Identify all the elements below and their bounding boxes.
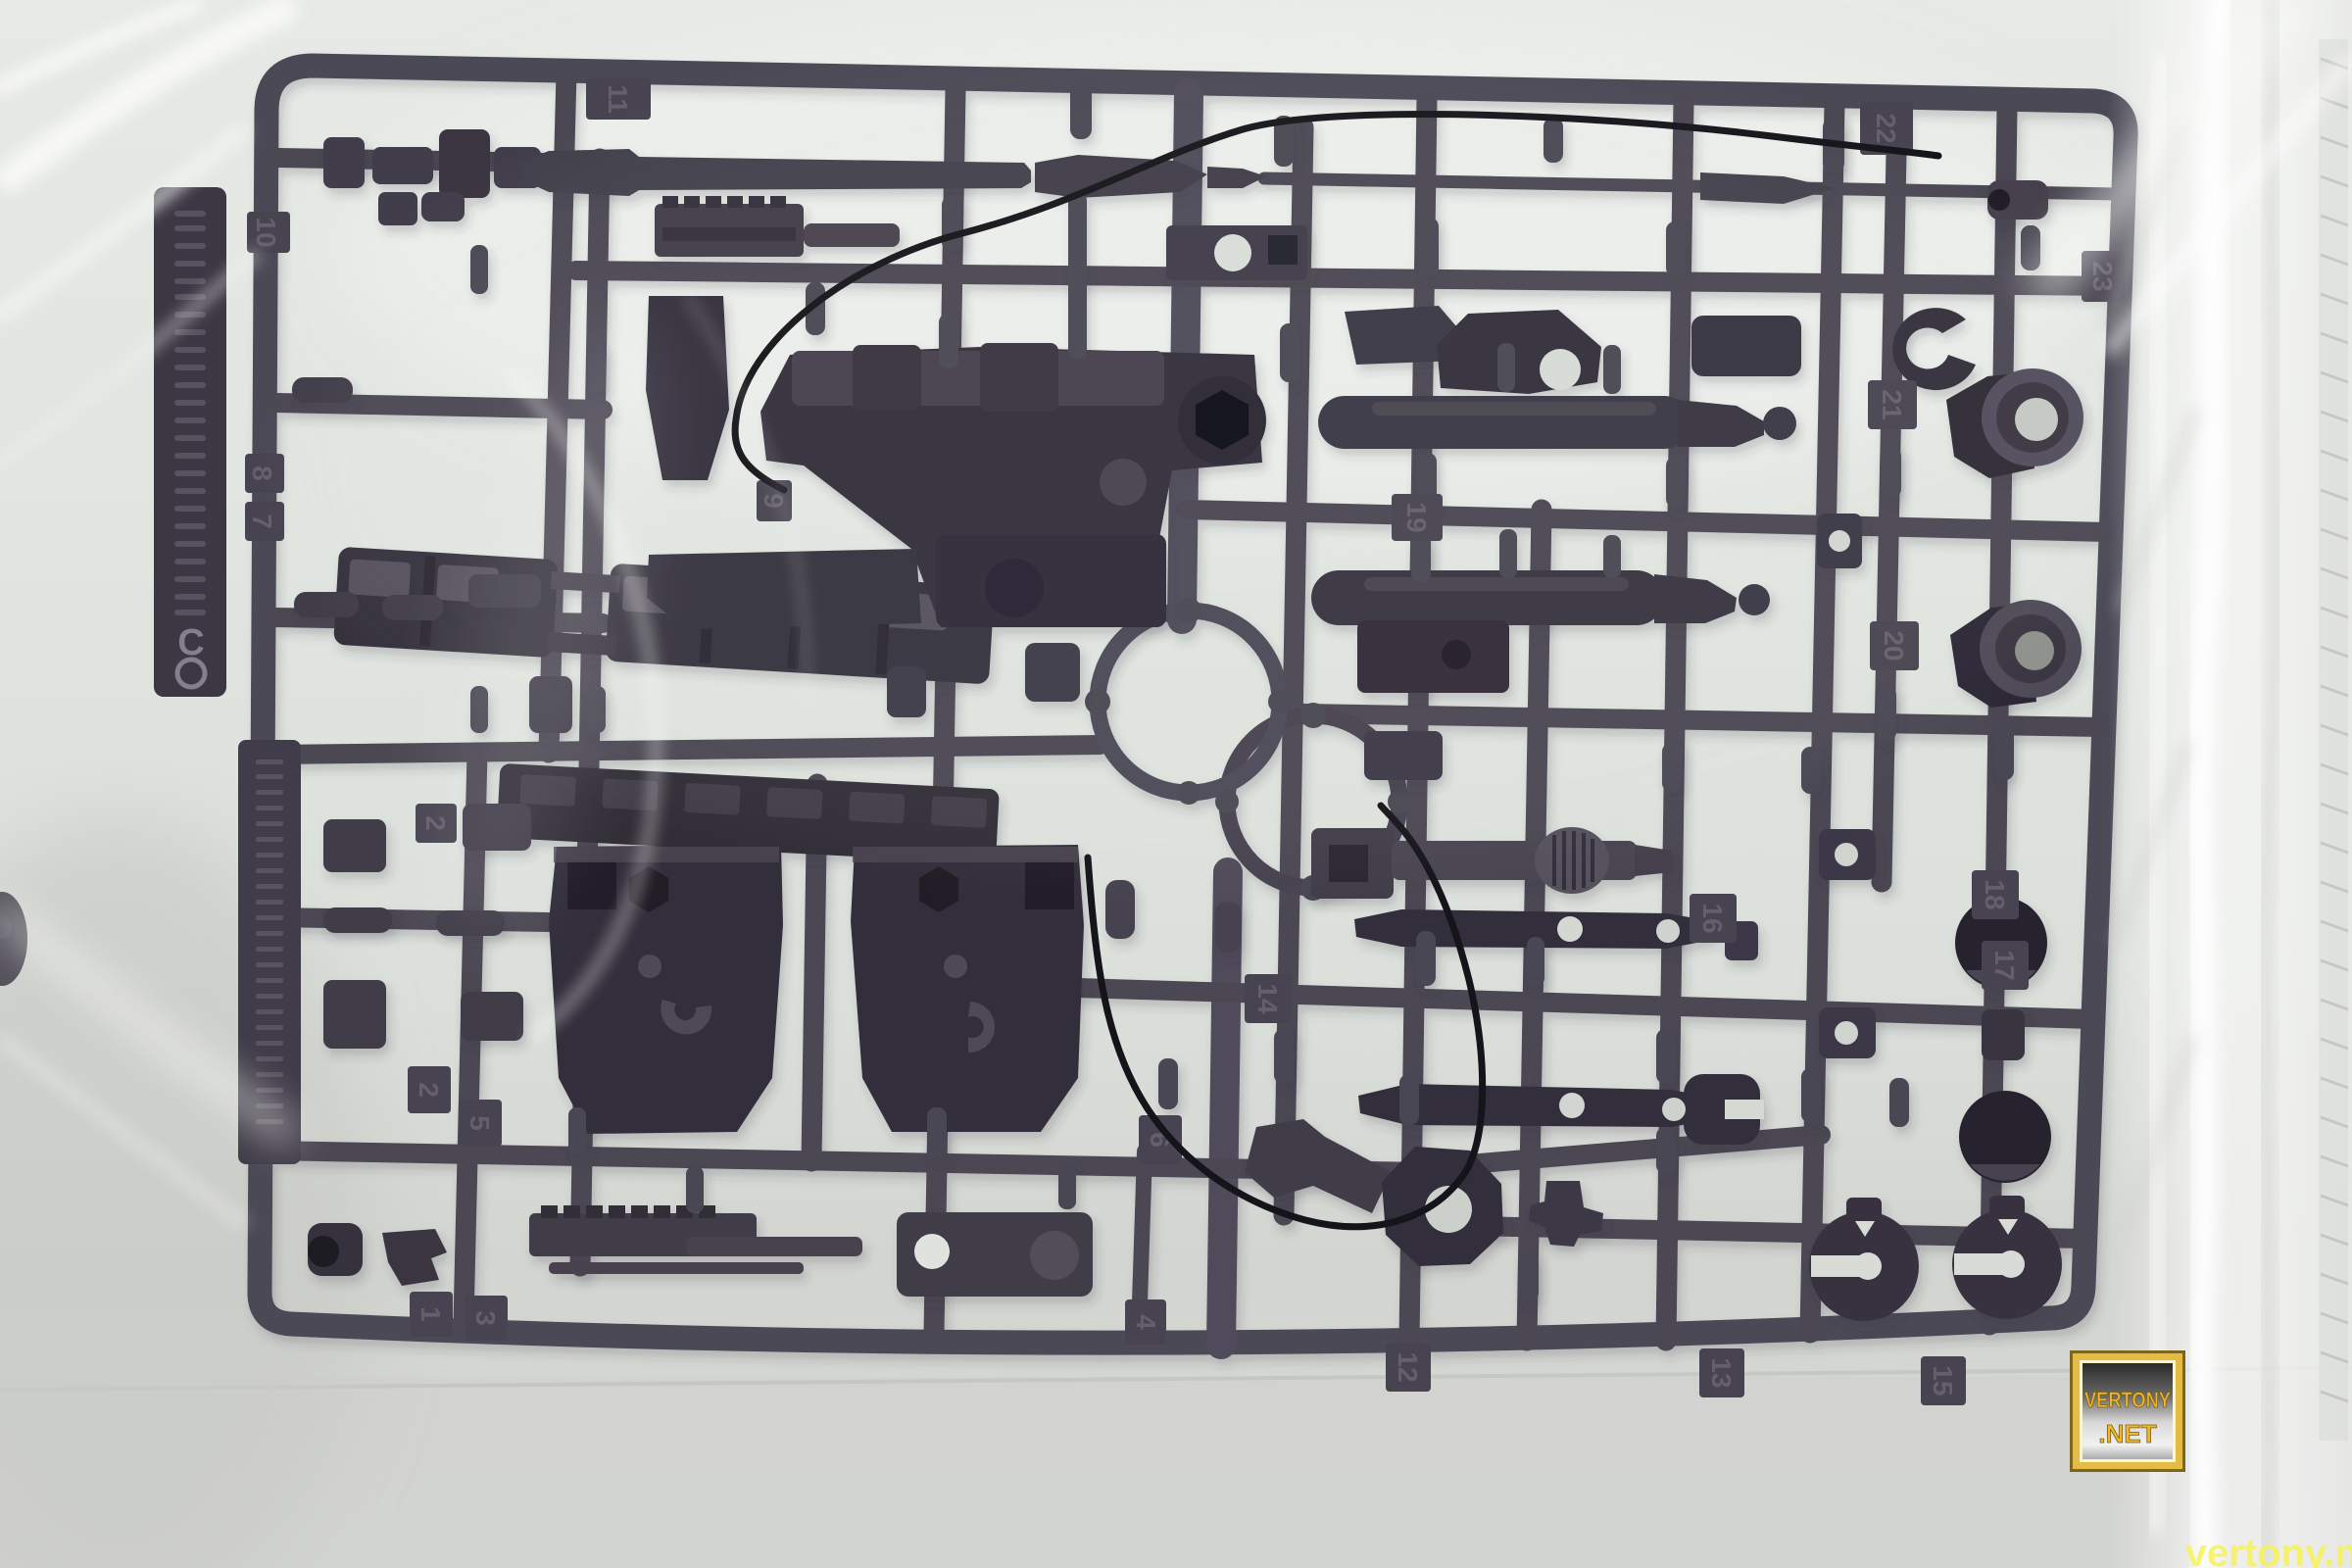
svg-text:1: 1 [416,1306,446,1322]
svg-text:10: 10 [251,217,281,247]
svg-text:16: 16 [1697,903,1728,933]
svg-text:11: 11 [603,84,633,114]
svg-text:15: 15 [1928,1365,1958,1396]
svg-text:4: 4 [1131,1314,1161,1330]
svg-text:vertony.net: vertony.net [2185,1532,2352,1568]
svg-text:22: 22 [1871,113,1901,143]
svg-text:14: 14 [1252,983,1283,1014]
svg-text:8: 8 [247,465,277,481]
svg-text:2: 2 [414,1082,444,1098]
svg-text:7: 7 [247,514,277,529]
svg-text:3: 3 [470,1310,501,1326]
svg-text:18: 18 [1980,879,2010,909]
svg-text:VERTONY: VERTONY [2084,1388,2171,1412]
svg-text:5: 5 [465,1115,495,1131]
svg-text:.NET: .NET [2098,1419,2156,1448]
svg-text:12: 12 [1393,1351,1423,1382]
svg-text:17: 17 [1989,950,2020,980]
svg-text:13: 13 [1706,1357,1737,1388]
